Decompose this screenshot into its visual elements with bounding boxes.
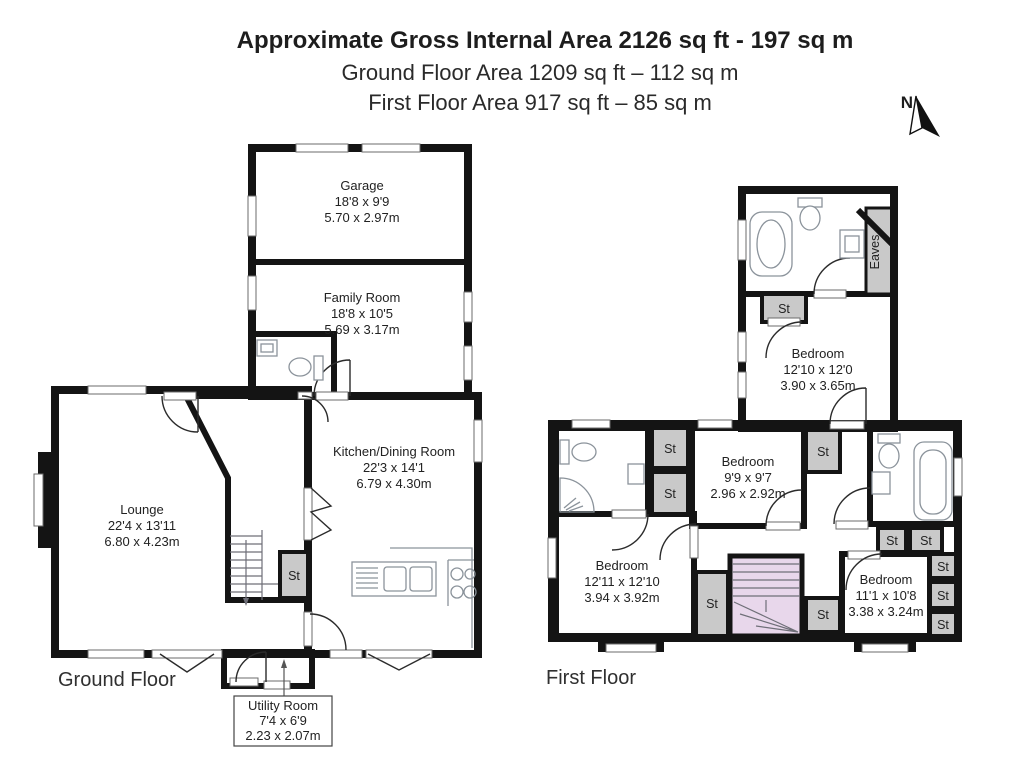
svg-text:St: St <box>817 608 829 622</box>
svg-text:9'9 x 9'7: 9'9 x 9'7 <box>724 470 772 485</box>
window <box>464 346 472 380</box>
bifold-door <box>304 488 331 540</box>
utility-callout: Utility Room 7'4 x 6'9 2.23 x 2.07m <box>234 659 332 746</box>
svg-text:3.38 x 3.24m: 3.38 x 3.24m <box>848 604 923 619</box>
window <box>464 292 472 322</box>
svg-text:5.69 x 3.17m: 5.69 x 3.17m <box>324 322 399 337</box>
leader-arrow <box>281 659 287 668</box>
window <box>248 276 256 310</box>
eaves-label: Eaves <box>868 235 882 270</box>
label-kitchen: Kitchen/Dining Room 22'3 x 14'1 6.79 x 4… <box>333 444 455 491</box>
storage-closet: St <box>696 572 728 636</box>
svg-text:St: St <box>817 445 829 459</box>
storage-closet: St <box>652 472 688 514</box>
toilet-icon <box>560 440 596 464</box>
svg-text:St: St <box>288 569 300 583</box>
svg-text:St: St <box>706 597 718 611</box>
svg-text:6.79 x 4.30m: 6.79 x 4.30m <box>356 476 431 491</box>
svg-text:12'10 x 12'0: 12'10 x 12'0 <box>783 362 852 377</box>
door-arc <box>834 488 870 529</box>
door-arc <box>304 612 346 650</box>
floorplan-image: Approximate Gross Internal Area 2126 sq … <box>0 0 1024 768</box>
svg-text:St: St <box>920 534 932 548</box>
svg-text:2.96 x 2.92m: 2.96 x 2.92m <box>710 486 785 501</box>
window <box>88 650 144 658</box>
door-arc <box>612 510 648 550</box>
svg-text:7'4 x 6'9: 7'4 x 6'9 <box>259 713 307 728</box>
window <box>248 196 256 236</box>
door-arc <box>814 258 850 298</box>
window <box>698 420 732 428</box>
lounge-bay-window <box>34 452 58 548</box>
svg-text:11'1 x 10'8: 11'1 x 10'8 <box>855 588 916 603</box>
window <box>330 650 362 658</box>
first-area-subtitle: First Floor Area 917 sq ft – 85 sq m <box>368 90 712 115</box>
window <box>572 420 610 428</box>
page-title: Approximate Gross Internal Area 2126 sq … <box>237 27 854 54</box>
label-bedroom-2: Bedroom 9'9 x 9'7 2.96 x 2.92m <box>710 454 785 501</box>
sink-icon <box>840 230 864 258</box>
floorplan-page: Approximate Gross Internal Area 2126 sq … <box>0 0 1024 768</box>
kitchen-sink-icon <box>352 562 436 596</box>
label-family-room: Family Room 18'8 x 10'5 5.69 x 3.17m <box>324 290 401 337</box>
window <box>88 386 146 394</box>
window <box>738 220 746 260</box>
ground-area-subtitle: Ground Floor Area 1209 sq ft – 112 sq m <box>341 60 738 85</box>
storage-closet: St <box>930 554 956 578</box>
bath-icon <box>914 442 952 520</box>
window <box>296 144 348 152</box>
window <box>264 681 290 689</box>
svg-text:12'11 x 12'10: 12'11 x 12'10 <box>584 574 660 589</box>
svg-text:Bedroom: Bedroom <box>596 558 649 573</box>
toilet-icon <box>878 434 900 468</box>
storage-closet: St <box>878 528 906 552</box>
svg-text:St: St <box>664 487 676 501</box>
first-floor-label: First Floor <box>546 667 636 689</box>
room-lounge-block <box>55 390 308 654</box>
svg-text:St: St <box>664 442 676 456</box>
storage-closet: St <box>806 598 840 632</box>
sink-icon <box>872 472 890 494</box>
window <box>738 372 746 398</box>
window <box>362 144 420 152</box>
french-door <box>366 650 432 658</box>
ground-floor-label: Ground Floor <box>58 669 176 691</box>
svg-text:22'3 x 14'1: 22'3 x 14'1 <box>363 460 425 475</box>
svg-text:St: St <box>886 534 898 548</box>
svg-text:Family Room: Family Room <box>324 290 401 305</box>
svg-text:Bedroom: Bedroom <box>792 346 845 361</box>
svg-text:18'8 x 10'5: 18'8 x 10'5 <box>331 306 393 321</box>
bay-window <box>854 636 916 652</box>
svg-text:St: St <box>937 560 949 574</box>
storage-closet: St <box>806 430 840 472</box>
sink-icon <box>628 464 644 484</box>
svg-text:St: St <box>778 302 790 316</box>
svg-text:St: St <box>937 589 949 603</box>
stairs <box>230 530 280 606</box>
north-arrow: N <box>901 93 940 137</box>
window <box>738 332 746 362</box>
svg-text:5.70 x 2.97m: 5.70 x 2.97m <box>324 210 399 225</box>
svg-text:22'4 x 13'11: 22'4 x 13'11 <box>108 518 176 533</box>
svg-text:3.90 x 3.65m: 3.90 x 3.65m <box>780 378 855 393</box>
storage-closet: St <box>652 428 688 468</box>
storage-closet: St <box>910 528 942 552</box>
door-arc <box>660 524 698 560</box>
svg-text:Bedroom: Bedroom <box>860 572 913 587</box>
svg-text:Bedroom: Bedroom <box>722 454 775 469</box>
storage-closet: St <box>280 552 308 598</box>
svg-text:3.94 x 3.92m: 3.94 x 3.92m <box>584 590 659 605</box>
window <box>474 420 482 462</box>
door-arc <box>830 388 866 429</box>
shower-icon <box>560 478 594 512</box>
window <box>548 538 556 578</box>
label-bedroom-4: Bedroom 11'1 x 10'8 3.38 x 3.24m <box>848 572 923 619</box>
svg-text:St: St <box>937 618 949 632</box>
toilet-icon <box>798 198 822 230</box>
svg-text:Kitchen/Dining Room: Kitchen/Dining Room <box>333 444 455 459</box>
toilet-icon <box>289 356 323 380</box>
svg-text:6.80 x 4.23m: 6.80 x 4.23m <box>104 534 179 549</box>
stairs <box>730 556 802 636</box>
bath-icon <box>750 212 792 276</box>
svg-text:Garage: Garage <box>340 178 383 193</box>
label-garage: Garage 18'8 x 9'9 5.70 x 2.97m <box>324 178 399 225</box>
storage-closet: St <box>930 582 956 608</box>
first-floor-plan: St St St St St St St St St St St <box>546 190 962 689</box>
svg-text:2.23 x 2.07m: 2.23 x 2.07m <box>245 728 320 743</box>
storage-closet: St <box>930 612 956 636</box>
label-lounge: Lounge 22'4 x 13'11 6.80 x 4.23m <box>104 502 179 549</box>
compass-north-label: N <box>901 93 913 112</box>
ground-floor-plan: St <box>34 144 482 746</box>
label-bedroom-3: Bedroom 12'11 x 12'10 3.94 x 3.92m <box>584 558 660 605</box>
window <box>152 650 222 658</box>
svg-text:Lounge: Lounge <box>120 502 163 517</box>
window <box>954 458 962 496</box>
room-kitchen <box>308 396 478 654</box>
bay-window <box>598 636 664 652</box>
svg-text:Utility Room: Utility Room <box>248 698 318 713</box>
label-bedroom-1: Bedroom 12'10 x 12'0 3.90 x 3.65m <box>780 346 855 393</box>
sink-icon <box>257 340 277 356</box>
svg-text:18'8 x 9'9: 18'8 x 9'9 <box>335 194 390 209</box>
